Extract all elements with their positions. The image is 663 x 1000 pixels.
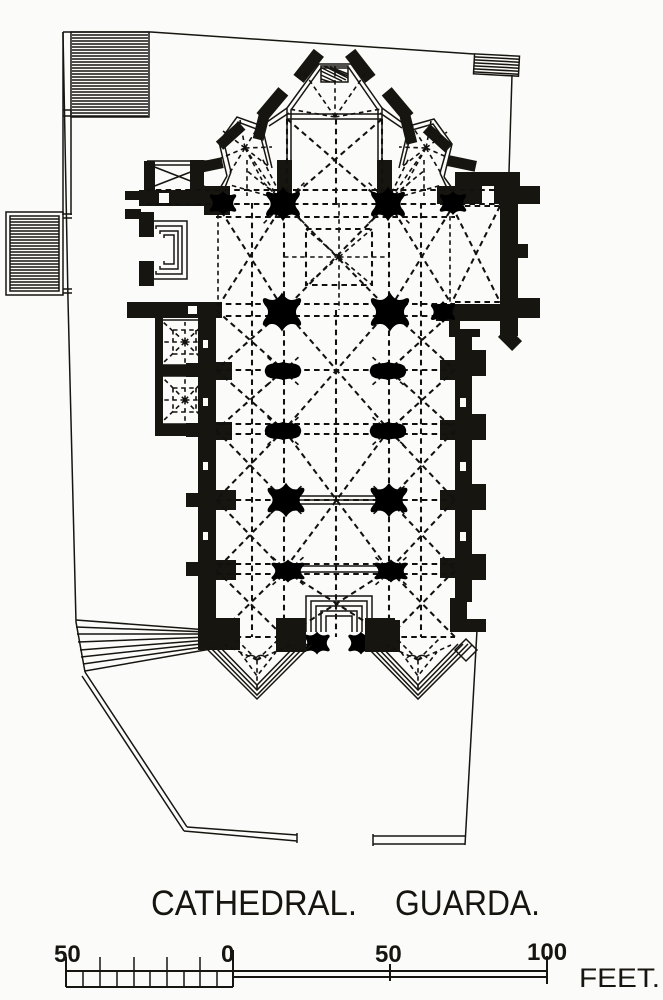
svg-text:100: 100 [527,939,567,966]
svg-text:FEET.: FEET. [579,963,660,993]
svg-text:50: 50 [375,941,402,968]
svg-text:50: 50 [54,941,81,968]
svg-text:CATHEDRAL.: CATHEDRAL. [151,884,357,923]
svg-text:0: 0 [221,941,234,968]
svg-text:GUARDA.: GUARDA. [395,884,540,923]
